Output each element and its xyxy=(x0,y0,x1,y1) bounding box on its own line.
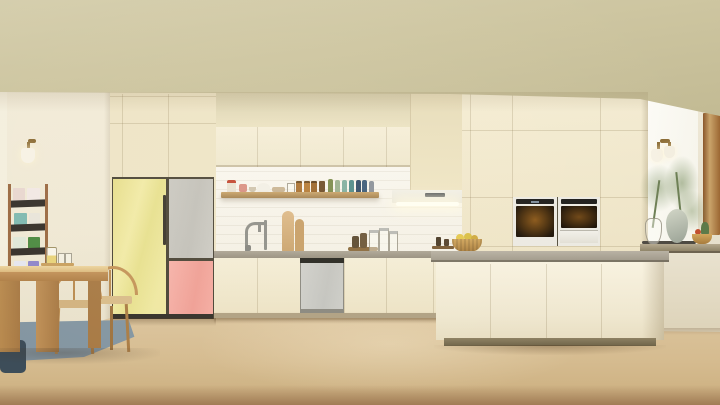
dark-jar xyxy=(352,236,359,248)
island-floor-shadow xyxy=(434,345,666,355)
teal-bottle xyxy=(349,180,354,192)
rack-shelf xyxy=(11,247,45,255)
wall-ovens xyxy=(513,197,600,246)
coral-cup xyxy=(239,184,247,192)
brown-jar xyxy=(319,181,325,192)
dining-floor-shadow xyxy=(0,348,160,364)
navy-bottle xyxy=(362,180,367,192)
sconce-shade xyxy=(21,148,35,163)
tabletop-edge xyxy=(0,272,108,281)
floating-shelf xyxy=(221,192,379,198)
compact-oven-glass xyxy=(561,206,597,228)
island-body xyxy=(436,262,664,340)
sage-bottle xyxy=(342,180,347,192)
dark-jar xyxy=(360,233,367,248)
oven-display xyxy=(531,201,539,203)
oven-door-glass xyxy=(516,206,554,237)
island-end-shadow xyxy=(642,262,664,340)
table-leg xyxy=(36,281,59,352)
teapot xyxy=(257,183,270,192)
faucet-spout xyxy=(258,224,261,232)
hood-under-light xyxy=(396,202,459,206)
toe-kick xyxy=(214,313,462,318)
cutting-board xyxy=(295,219,304,252)
chair-leg xyxy=(125,304,131,352)
chair-back-strut xyxy=(109,270,111,296)
table-leg xyxy=(88,281,101,348)
table-leg xyxy=(0,281,20,352)
chair-leg xyxy=(110,306,113,350)
fridge-handle xyxy=(163,195,166,245)
upper-cabinets xyxy=(216,127,412,167)
fridge-door-grey xyxy=(169,179,213,258)
hood-chimney-panel xyxy=(410,93,463,192)
hood-display xyxy=(425,193,445,197)
oven-control-bar xyxy=(516,199,554,204)
island-countertop xyxy=(431,251,669,262)
compact-oven-control-bar xyxy=(561,199,597,204)
soap-dispenser xyxy=(264,220,267,250)
rack-shelf xyxy=(11,223,45,231)
oven-right xyxy=(558,197,600,246)
dishwasher xyxy=(300,258,344,313)
small-dark-jar xyxy=(436,237,441,246)
warming-drawer xyxy=(560,230,598,243)
rack-shelf xyxy=(11,199,45,207)
grey-bottle xyxy=(369,181,374,192)
sage-bottle xyxy=(335,180,340,192)
oven-left xyxy=(513,197,557,246)
dishwasher-panel xyxy=(301,263,343,309)
green-bottle xyxy=(328,179,333,192)
small-dark-jar xyxy=(444,239,449,246)
counter-board xyxy=(432,246,454,249)
cutting-board xyxy=(282,211,294,252)
navy-bottle xyxy=(356,180,361,192)
fridge-door-pink xyxy=(169,261,213,314)
kitchen-scene xyxy=(0,0,720,405)
